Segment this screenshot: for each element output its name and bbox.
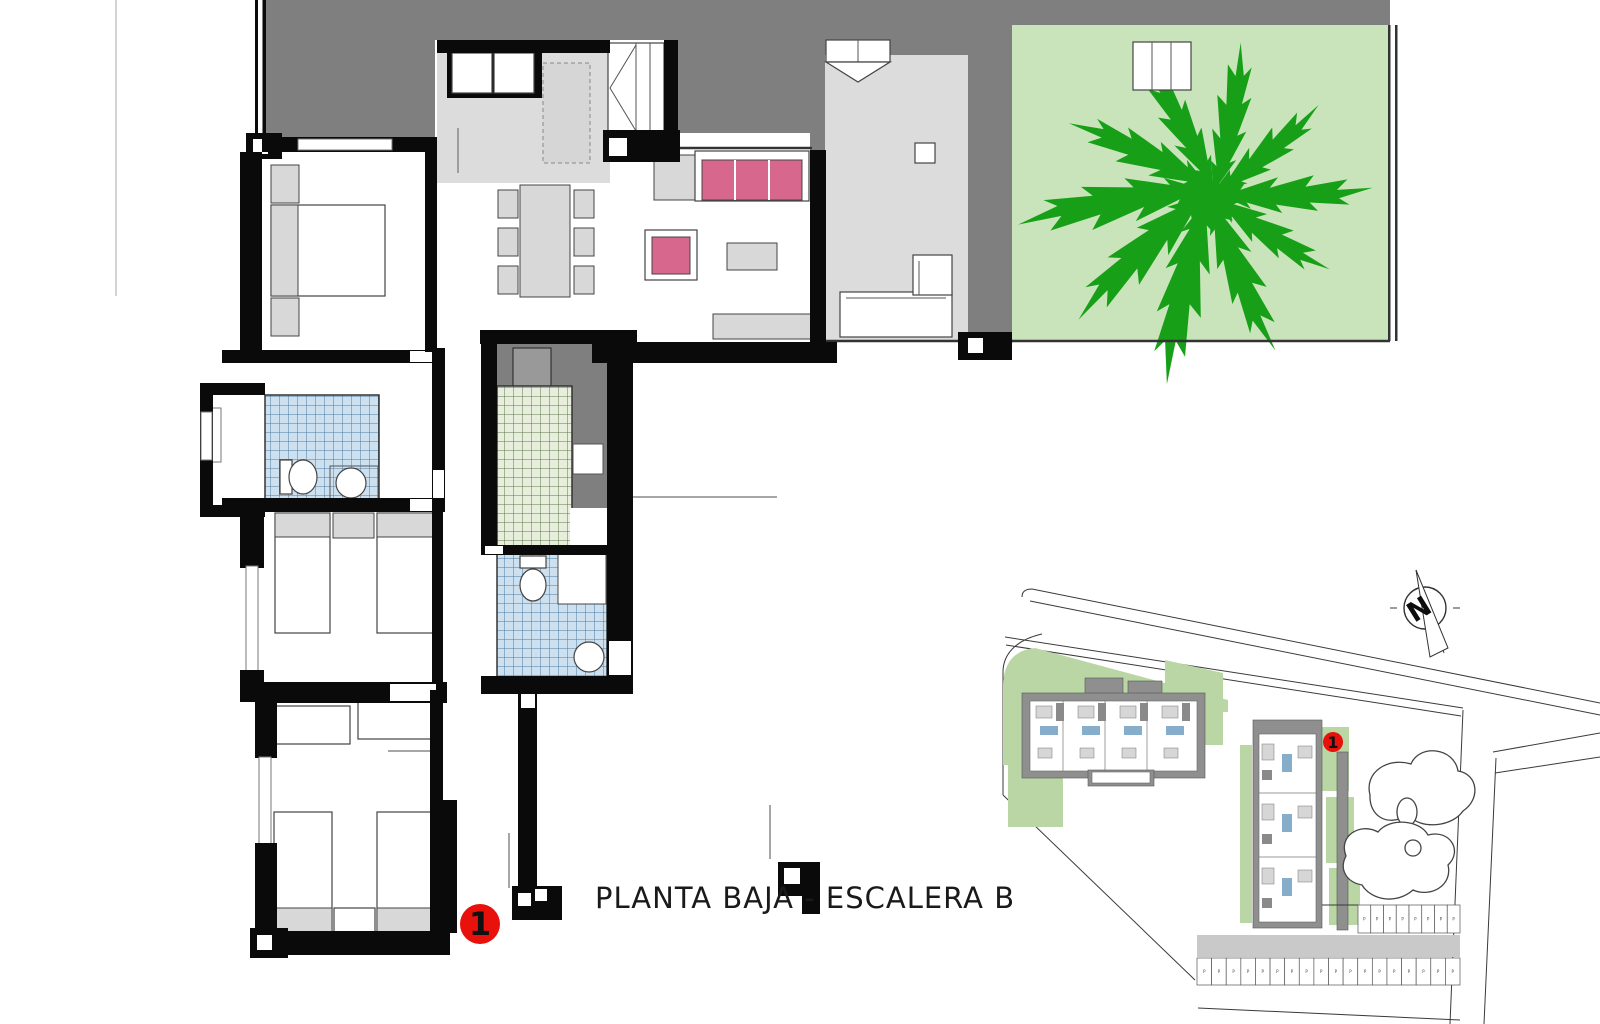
kitchen-appliance [494, 53, 534, 93]
kitchen-island-dashed [543, 63, 590, 163]
shower-head [574, 642, 604, 672]
bed-pillow [275, 513, 330, 537]
nightstand [334, 908, 375, 933]
dining-chair [574, 190, 594, 218]
unit-marker-number: 1 [469, 905, 491, 943]
dining-chair [498, 190, 518, 218]
garden-fence-line [1388, 25, 1391, 341]
dining-chair [574, 266, 594, 294]
dining-chair [574, 228, 594, 256]
tv-bench [713, 314, 811, 339]
site-unit-marker-number: 1 [1327, 733, 1338, 752]
bathroom-2 [497, 551, 607, 681]
terrace-side-table [915, 143, 935, 163]
kitchen [437, 48, 610, 183]
service-patio [493, 342, 610, 548]
site-unit-marker: 1 [1323, 732, 1343, 752]
laundry-tiled-floor [497, 386, 572, 548]
coffee-table [727, 243, 777, 270]
garden-fence-line-2 [1395, 25, 1398, 341]
toilet-bowl [520, 569, 546, 601]
shaft-opening [570, 508, 608, 548]
garden [1012, 25, 1398, 388]
sofa [695, 151, 809, 201]
plan-canvas: 1 PLANTA BAJA - ESCALERA B [0, 0, 1600, 1024]
garden-storage-box [1133, 42, 1191, 90]
vanity [558, 554, 606, 604]
parking-row-upper: PPPPPPPP [1358, 905, 1460, 933]
washing-machine [513, 348, 551, 386]
entry-closet [608, 43, 664, 133]
bed-pillows [271, 205, 298, 296]
unit-marker: 1 [460, 904, 500, 944]
armchair [645, 230, 697, 280]
dining-chair [498, 228, 518, 256]
nightstand [271, 298, 299, 336]
floorplan-sheet: 1 PLANTA BAJA - ESCALERA B [0, 0, 1600, 1024]
pool-island [1405, 840, 1421, 856]
nightstand [333, 513, 374, 538]
kitchen-sink-unit [452, 53, 492, 93]
wash-basin [336, 468, 366, 498]
dining-table-set [498, 185, 594, 297]
dining-chair [498, 266, 518, 294]
dining-table [520, 185, 570, 297]
nightstand [271, 165, 299, 203]
toilet-tank [520, 556, 546, 568]
wardrobe [358, 701, 436, 739]
bed-pillow [377, 908, 434, 933]
shaft-box [573, 444, 603, 474]
wardrobe [272, 706, 350, 744]
toilet-bowl [289, 460, 317, 494]
site-building-a [1022, 678, 1205, 786]
bed-pillow [377, 513, 435, 537]
plan-title: PLANTA BAJA - ESCALERA B [595, 881, 1015, 915]
parking-driveway [1197, 935, 1460, 957]
parking-row-lower: PPPPPPPPPPPPPPPPPP [1197, 958, 1460, 985]
